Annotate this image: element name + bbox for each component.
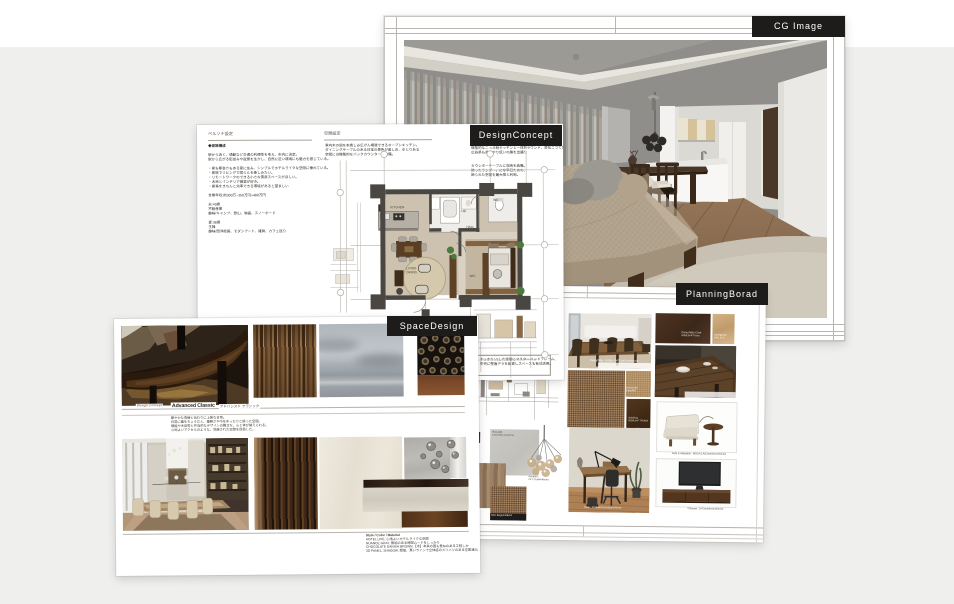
- svg-text:HALL: HALL: [466, 225, 474, 229]
- svg-text:WC: WC: [493, 198, 499, 202]
- svg-text:UB: UB: [461, 209, 465, 213]
- svg-text:DINING: DINING: [407, 270, 418, 274]
- svg-text:KITCHEN: KITCHEN: [390, 205, 405, 209]
- svg-text:WIC: WIC: [470, 274, 477, 278]
- svg-text:BED ROOM: BED ROOM: [491, 241, 509, 245]
